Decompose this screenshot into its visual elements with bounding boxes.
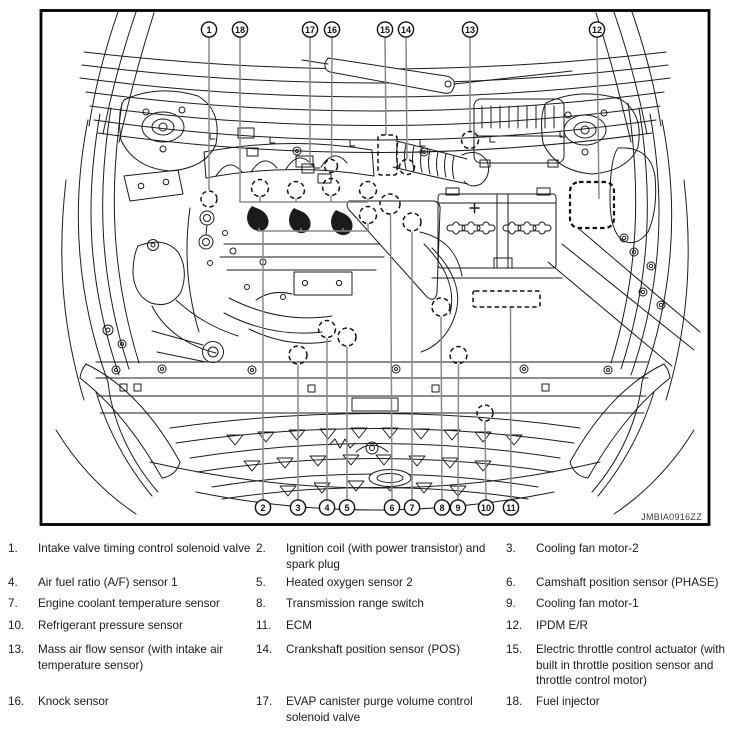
- legend-row: 1. Intake valve timing control solenoid …: [0, 541, 744, 572]
- callout-2: 2: [255, 500, 270, 515]
- legend-item-number: 7.: [8, 596, 38, 612]
- legend-item-number: 14.: [256, 642, 286, 689]
- legend-item-number: 15.: [506, 642, 536, 689]
- legend-item-text: Refrigerant pressure sensor: [38, 618, 256, 634]
- legend-item-text: Crankshaft position sensor (POS): [286, 642, 496, 689]
- legend-item-text: Intake valve timing control solenoid val…: [38, 541, 256, 572]
- callout-10: 10: [478, 500, 493, 515]
- legend-item-text: Air fuel ratio (A/F) sensor 1: [38, 575, 256, 591]
- callout-1: 1: [201, 22, 216, 37]
- legend-item-number: 10.: [8, 618, 38, 634]
- figure-border: [41, 11, 709, 525]
- svg-text:7: 7: [409, 503, 414, 513]
- legend-row: 16. Knock sensor 17. EVAP canister purge…: [0, 694, 744, 725]
- legend-item-text: Electric throttle control actuator (with…: [536, 642, 744, 689]
- legend-row: 7. Engine coolant temperature sensor 8. …: [0, 596, 744, 612]
- legend-item-number: 18.: [506, 694, 536, 725]
- callout-15: 15: [377, 22, 392, 37]
- legend-item-text: IPDM E/R: [536, 618, 744, 634]
- svg-text:10: 10: [481, 503, 491, 513]
- callout-8: 8: [434, 500, 449, 515]
- legend-item-text: Cooling fan motor-1: [536, 596, 744, 612]
- manual-figure-page: 1 18 17 16 15 14 13 12 2 3 4 5 6 7 8 9 1…: [0, 0, 744, 734]
- svg-text:11: 11: [506, 503, 516, 513]
- legend-row: 13. Mass air flow sensor (with intake ai…: [0, 642, 744, 689]
- svg-text:18: 18: [235, 25, 245, 35]
- legend-row: 10. Refrigerant pressure sensor 11. ECM …: [0, 618, 744, 634]
- callout-16: 16: [324, 22, 339, 37]
- svg-text:8: 8: [439, 503, 444, 513]
- legend-item-text: Knock sensor: [38, 694, 256, 725]
- callout-9: 9: [450, 500, 465, 515]
- legend-item-text: Transmission range switch: [286, 596, 496, 612]
- legend-item-number: 12.: [506, 618, 536, 634]
- legend-item-text: Heated oxygen sensor 2: [286, 575, 496, 591]
- legend-item-number: 8.: [256, 596, 286, 612]
- legend-item-text: ECM: [286, 618, 496, 634]
- svg-text:2: 2: [260, 503, 265, 513]
- legend-item-number: 5.: [256, 575, 286, 591]
- legend-item-number: 9.: [506, 596, 536, 612]
- svg-text:16: 16: [327, 25, 337, 35]
- legend-row: 4. Air fuel ratio (A/F) sensor 1 5. Heat…: [0, 575, 744, 591]
- figure-code: JMBIA0916ZZ: [641, 512, 702, 522]
- svg-text:15: 15: [380, 25, 390, 35]
- svg-text:5: 5: [344, 503, 349, 513]
- legend-item-number: 3.: [506, 541, 536, 572]
- callout-7: 7: [404, 500, 419, 515]
- callout-14: 14: [398, 22, 413, 37]
- callout-3: 3: [290, 500, 305, 515]
- legend-item-text: Mass air flow sensor (with intake air te…: [38, 642, 256, 689]
- engine-bay-diagram: 1 18 17 16 15 14 13 12 2 3 4 5 6 7 8 9 1…: [0, 0, 744, 535]
- legend-item-text: Fuel injector: [536, 694, 744, 725]
- svg-text:3: 3: [295, 503, 300, 513]
- legend-item-number: 2.: [256, 541, 286, 572]
- svg-text:9: 9: [455, 503, 460, 513]
- legend-item-number: 4.: [8, 575, 38, 591]
- legend-item-number: 17.: [256, 694, 286, 725]
- svg-text:1: 1: [206, 25, 211, 35]
- svg-text:14: 14: [401, 25, 411, 35]
- legend-item-number: 11.: [256, 618, 286, 634]
- figure: 1 18 17 16 15 14 13 12 2 3 4 5 6 7 8 9 1…: [0, 0, 744, 535]
- callout-11: 11: [503, 500, 518, 515]
- legend-item-number: 13.: [8, 642, 38, 689]
- legend-item-text: Cooling fan motor-2: [536, 541, 744, 572]
- legend-item-number: 6.: [506, 575, 536, 591]
- svg-text:6: 6: [389, 503, 394, 513]
- svg-text:17: 17: [305, 25, 315, 35]
- svg-text:4: 4: [324, 503, 329, 513]
- legend-item-number: 16.: [8, 694, 38, 725]
- legend-item-text: EVAP canister purge volume control solen…: [286, 694, 496, 725]
- svg-text:13: 13: [465, 25, 475, 35]
- callout-12: 12: [589, 22, 604, 37]
- callout-17: 17: [302, 22, 317, 37]
- legend: 1. Intake valve timing control solenoid …: [0, 535, 744, 734]
- svg-text:12: 12: [592, 25, 602, 35]
- callout-18: 18: [232, 22, 247, 37]
- callout-5: 5: [339, 500, 354, 515]
- legend-item-text: Ignition coil (with power transistor) an…: [286, 541, 496, 572]
- callout-6: 6: [384, 500, 399, 515]
- callout-13: 13: [462, 22, 477, 37]
- legend-item-text: Engine coolant temperature sensor: [38, 596, 256, 612]
- callout-4: 4: [319, 500, 334, 515]
- legend-item-number: 1.: [8, 541, 38, 572]
- legend-item-text: Camshaft position sensor (PHASE): [536, 575, 744, 591]
